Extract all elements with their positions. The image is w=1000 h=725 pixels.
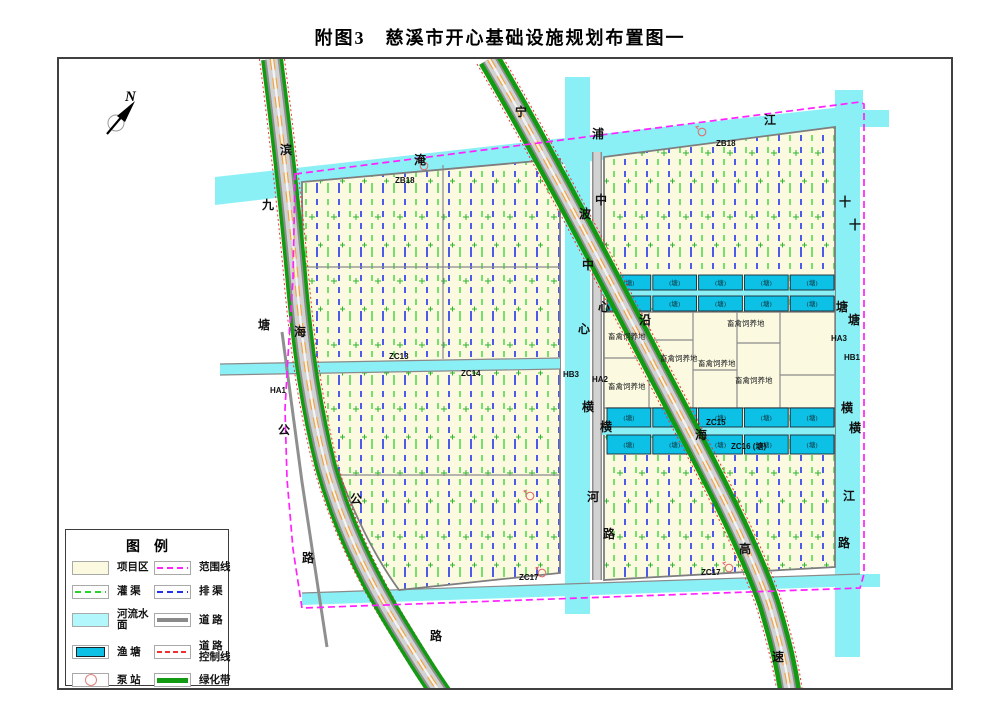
map-label-cjk: 十 (849, 217, 861, 232)
map-label-cjk: 塘 (848, 312, 860, 327)
map-label-cjk: 滨 (280, 142, 292, 157)
fish-pond-label: (塘) (715, 299, 726, 308)
fish-pond-label: (塘) (669, 440, 680, 449)
legend-title: 图例 (66, 536, 228, 556)
map-label-cjk: 淹 (414, 152, 427, 167)
fish-pond-label: (塘) (715, 278, 726, 287)
fish-pond-label: (塘) (807, 278, 818, 287)
map-label-cjk: 海 (695, 427, 707, 442)
map-label-area: 畜禽饲养地 (608, 331, 646, 341)
map-label-code: ZC16 (塘) (731, 441, 766, 451)
legend-label: 项目区 (114, 562, 154, 573)
map-label-code: HA2 (592, 375, 609, 384)
map-label-code: ZC15 (706, 418, 726, 427)
map-label-code: ZC17 (519, 573, 539, 582)
map-label-code: HA3 (831, 334, 848, 343)
map-label-cjk: 路 (838, 535, 851, 550)
map-frame: (塘)(塘)(塘)(塘)(塘)(塘)(塘)(塘)(塘)(塘)(塘)(塘)(塘)(… (57, 57, 953, 690)
map-label-cjk: 塘 (836, 299, 848, 314)
map-label-code: ZC13 (389, 352, 409, 361)
map-label-cjk: 宁 (515, 104, 527, 119)
legend-swatch-green-belt (154, 673, 191, 687)
north-arrow: N (107, 89, 137, 134)
fish-pond-label: (塘) (623, 413, 634, 422)
legend-swatch-fish-pond (72, 645, 109, 659)
map-label-cjk: 中 (582, 257, 594, 272)
map-label-cjk: 路 (603, 526, 616, 541)
map-label-cjk: 横 (600, 419, 613, 434)
legend-swatch-project-area (72, 561, 109, 575)
map-label-cjk: 河 (586, 489, 599, 504)
legend-swatch-boundary-line (154, 561, 191, 575)
fish-pond-label: (塘) (807, 413, 818, 422)
legend-label: 泵 站 (114, 675, 154, 686)
fish-pond-label: (塘) (807, 440, 818, 449)
fish-pond-label: (塘) (761, 278, 772, 287)
fish-pond-label: (塘) (761, 299, 772, 308)
pump-station-icon (85, 674, 97, 686)
map-label-code: ZC17 (701, 568, 721, 577)
map-label-area: 畜禽饲养地 (608, 381, 646, 391)
map-label-cjk: 浦 (592, 126, 604, 141)
fish-pond-label: (塘) (623, 440, 634, 449)
legend-label: 绿化带 (196, 675, 236, 686)
map-label-code: ZB18 (395, 176, 415, 185)
legend-swatch-irrigation-canal (72, 585, 109, 599)
legend-row: 河流水面 道 路 (72, 609, 228, 631)
map-label-code: ZC14 (461, 369, 481, 378)
pond-canal-upper (602, 290, 835, 296)
map-label-cjk: 速 (772, 649, 784, 664)
map-label-area: 畜禽饲养地 (735, 375, 773, 385)
central-river (565, 77, 590, 614)
map-label-area: 畜禽饲养地 (660, 353, 698, 363)
legend-label: 道 路 控制线 (196, 641, 236, 663)
legend-row: 泵 站 绿化带 (72, 673, 228, 687)
legend-row: 灌 渠 排 渠 (72, 585, 228, 599)
legend-label: 灌 渠 (114, 586, 154, 597)
map-label-cjk: 横 (841, 400, 854, 415)
map-label-area: 畜禽饲养地 (727, 318, 765, 328)
map-label-cjk: 十 (839, 194, 851, 209)
legend-swatch-pump-station (72, 673, 109, 687)
map-label-cjk: 公 (278, 423, 290, 437)
map-label-code: HB3 (563, 370, 580, 379)
map-label-cjk: 路 (430, 628, 443, 643)
right-river (835, 90, 860, 657)
fish-pond-label: (塘) (669, 299, 680, 308)
north-label: N (124, 89, 137, 105)
fish-pond-label: (塘) (807, 299, 818, 308)
map-label-cjk: 波 (579, 206, 592, 221)
legend-row: 项目区 范围线 (72, 561, 228, 575)
map-label-cjk: 中 (595, 192, 607, 207)
legend-label: 渔 塘 (114, 647, 154, 658)
map-label-cjk: 海 (294, 324, 306, 339)
legend-label: 范围线 (196, 562, 236, 573)
map-label-area: 畜禽饲养地 (698, 358, 736, 368)
map-label-cjk: 塘 (258, 317, 270, 332)
map-label-cjk: 心 (598, 300, 610, 314)
fish-pond-label: (塘) (715, 440, 726, 449)
page-title: 附图3 慈溪市开心基础设施规划布置图一 (0, 24, 1000, 50)
map-label-cjk: 沿 (638, 313, 651, 327)
fish-pond-label: (塘) (761, 413, 772, 422)
legend-label: 排 渠 (196, 586, 236, 597)
map-label-code: ZB18 (716, 139, 736, 148)
map-label-cjk: 横 (582, 399, 595, 414)
map-label-cjk: 江 (764, 112, 776, 127)
legend-label: 河流水面 (114, 609, 154, 631)
map-label-cjk: 公 (350, 492, 362, 506)
legend: 图例 项目区 范围线 灌 渠 排 渠 河流水面 道 路 渔 塘 道 路 控制线 (65, 529, 229, 686)
map-label-cjk: 高 (739, 541, 751, 556)
map-label-cjk: 九 (261, 197, 274, 212)
legend-row: 渔 塘 道 路 控制线 (72, 641, 228, 663)
map-label-code: HA1 (270, 386, 287, 395)
legend-swatch-river-surface (72, 613, 109, 627)
legend-label: 道 路 (196, 615, 236, 626)
map-label-cjk: 江 (843, 488, 855, 503)
pond-canal-lower (602, 427, 835, 435)
legend-swatch-road (154, 613, 191, 627)
map-label-code: HB1 (844, 353, 861, 362)
map-label-cjk: 路 (302, 550, 315, 565)
map-label-cjk: 横 (849, 420, 862, 435)
map-label-cjk: 心 (578, 322, 590, 336)
legend-swatch-road-control-line (154, 645, 191, 659)
fish-pond-label: (塘) (669, 278, 680, 287)
legend-swatch-drain-canal (154, 585, 191, 599)
